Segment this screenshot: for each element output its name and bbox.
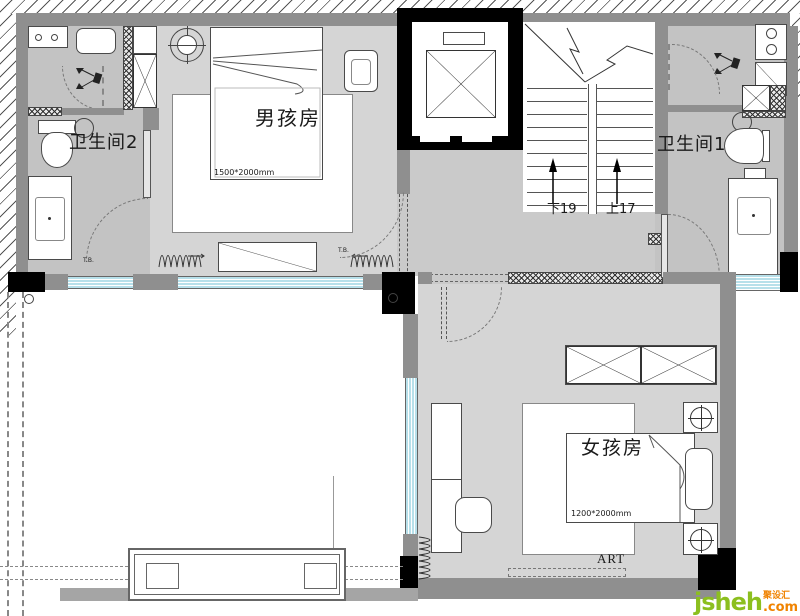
wall-girls-west	[403, 314, 418, 378]
planter-square	[304, 563, 337, 589]
watermark-suffix: 聚设汇 .com	[763, 592, 798, 614]
shower-door-leaf	[102, 66, 105, 106]
elevator-counterweight	[443, 32, 485, 45]
shower-tray	[76, 28, 116, 54]
art-mat-label: ART	[597, 552, 625, 565]
faucet-dot	[752, 214, 755, 217]
watermark-brand: jsheh	[694, 592, 762, 614]
elevator-door-sill	[462, 136, 492, 142]
sink-bowl-icon	[35, 34, 42, 41]
wardrobe	[565, 345, 717, 385]
shower-door-leaf	[668, 44, 671, 90]
bathroom1-label: 卫生间1	[657, 136, 726, 154]
bathroom2-sink-counter	[28, 26, 68, 48]
duct-shaft	[742, 85, 770, 111]
stair-break-line	[523, 22, 655, 90]
boys-bed-size: 1500*2000mm	[214, 169, 274, 177]
toilet	[724, 128, 770, 164]
terrace-dash-line	[0, 566, 128, 568]
desk	[431, 403, 462, 553]
wall-stairs-east	[655, 22, 668, 214]
wall-girls-east	[720, 284, 736, 548]
terrace-dash-line	[0, 579, 128, 581]
bathroom1-door-leaf	[661, 214, 668, 278]
lamp-icon	[690, 407, 712, 429]
girls-room-label: 女孩房	[581, 439, 644, 458]
window	[68, 276, 133, 289]
ceiling-light-inner	[177, 35, 197, 55]
wall-girls-west	[403, 534, 418, 556]
wall-segment	[418, 272, 432, 284]
wall-hatched-segment	[28, 107, 62, 116]
shower-head-icon	[712, 48, 742, 78]
bathroom2-door-leaf	[143, 130, 151, 198]
drain-circle	[24, 294, 34, 304]
lamp-icon	[690, 529, 712, 551]
washer-dial-icon	[766, 44, 777, 55]
sink-bowl-icon	[51, 34, 58, 41]
planter-box	[128, 548, 346, 601]
drain-circle	[388, 293, 398, 303]
door-opening-dashes	[430, 274, 508, 282]
washer-dial-icon	[766, 28, 777, 39]
wardrobe-cell	[641, 346, 716, 384]
bedside-chair	[344, 50, 378, 92]
bedside-chair-seat	[351, 59, 371, 85]
stairs-up-label: 上17	[606, 203, 636, 216]
headboard	[685, 448, 713, 510]
wall-bathroom2-east	[143, 108, 159, 130]
terrace-dash-line	[345, 579, 403, 581]
planter-connector-line	[333, 476, 334, 548]
cabinet	[133, 26, 157, 54]
radiator-coil	[418, 536, 433, 580]
stair-stringer	[588, 84, 597, 214]
stair-direction-arrow-up	[610, 156, 624, 206]
floor-plan-canvas: T.B. 男孩房 1500*2000mm T.B.	[0, 0, 800, 616]
column	[8, 272, 45, 292]
duct-shaft	[133, 54, 157, 108]
faucet-dot	[48, 217, 51, 220]
radiator-coil	[158, 252, 206, 268]
floor-mat	[508, 568, 626, 577]
wall-left	[16, 26, 28, 276]
stair-treads-right	[597, 88, 653, 206]
window-frame	[45, 274, 68, 290]
window	[178, 276, 363, 289]
desk-chair	[455, 497, 492, 533]
vanity-counter	[728, 178, 778, 278]
corridor-floor-east	[523, 212, 663, 276]
boys-bed: 男孩房 1500*2000mm	[210, 27, 323, 180]
window-mullion	[133, 274, 178, 290]
shaft-hatched-wall	[123, 26, 133, 110]
ceiling-light-icon	[170, 28, 204, 62]
girls-bed-size: 1200*2000mm	[571, 510, 631, 518]
nightstand	[683, 523, 718, 555]
corridor-floor	[397, 150, 523, 276]
annotation-tb: T.B.	[83, 258, 94, 264]
watermark-tld: .com	[763, 601, 798, 614]
stairs-down-label: 下19	[547, 203, 577, 216]
elevator-cab	[426, 50, 496, 118]
bench	[218, 242, 317, 272]
column	[780, 252, 798, 292]
window-mullion	[363, 274, 382, 290]
nightstand	[683, 402, 718, 433]
stair-direction-arrow-down	[546, 156, 560, 206]
watermark: jsheh 聚设汇 .com	[694, 584, 800, 614]
elevator-door-sill	[420, 136, 450, 142]
washer	[755, 24, 787, 60]
column	[382, 272, 415, 314]
desk-divider	[432, 479, 461, 480]
bed-linen-folds	[211, 28, 324, 181]
vanity-counter	[28, 176, 72, 260]
wardrobe-cell	[566, 346, 641, 384]
boys-room-label: 男孩房	[255, 108, 321, 128]
wall-boys-room-east	[397, 150, 410, 194]
girls-room-north-wall	[508, 272, 663, 284]
planter-square	[146, 563, 179, 589]
girls-bed: 女孩房 1200*2000mm	[566, 433, 695, 523]
wall-girls-south	[418, 578, 720, 599]
wall-under-vanity	[663, 272, 736, 284]
window	[736, 274, 780, 291]
terrace-dash-line	[345, 566, 403, 568]
shaft-hatched-wall	[770, 85, 786, 111]
planter-inner-frame	[134, 554, 340, 595]
window	[405, 378, 418, 534]
toilet-bowl	[724, 128, 764, 164]
bathroom2-label: 卫生间2	[69, 134, 138, 152]
